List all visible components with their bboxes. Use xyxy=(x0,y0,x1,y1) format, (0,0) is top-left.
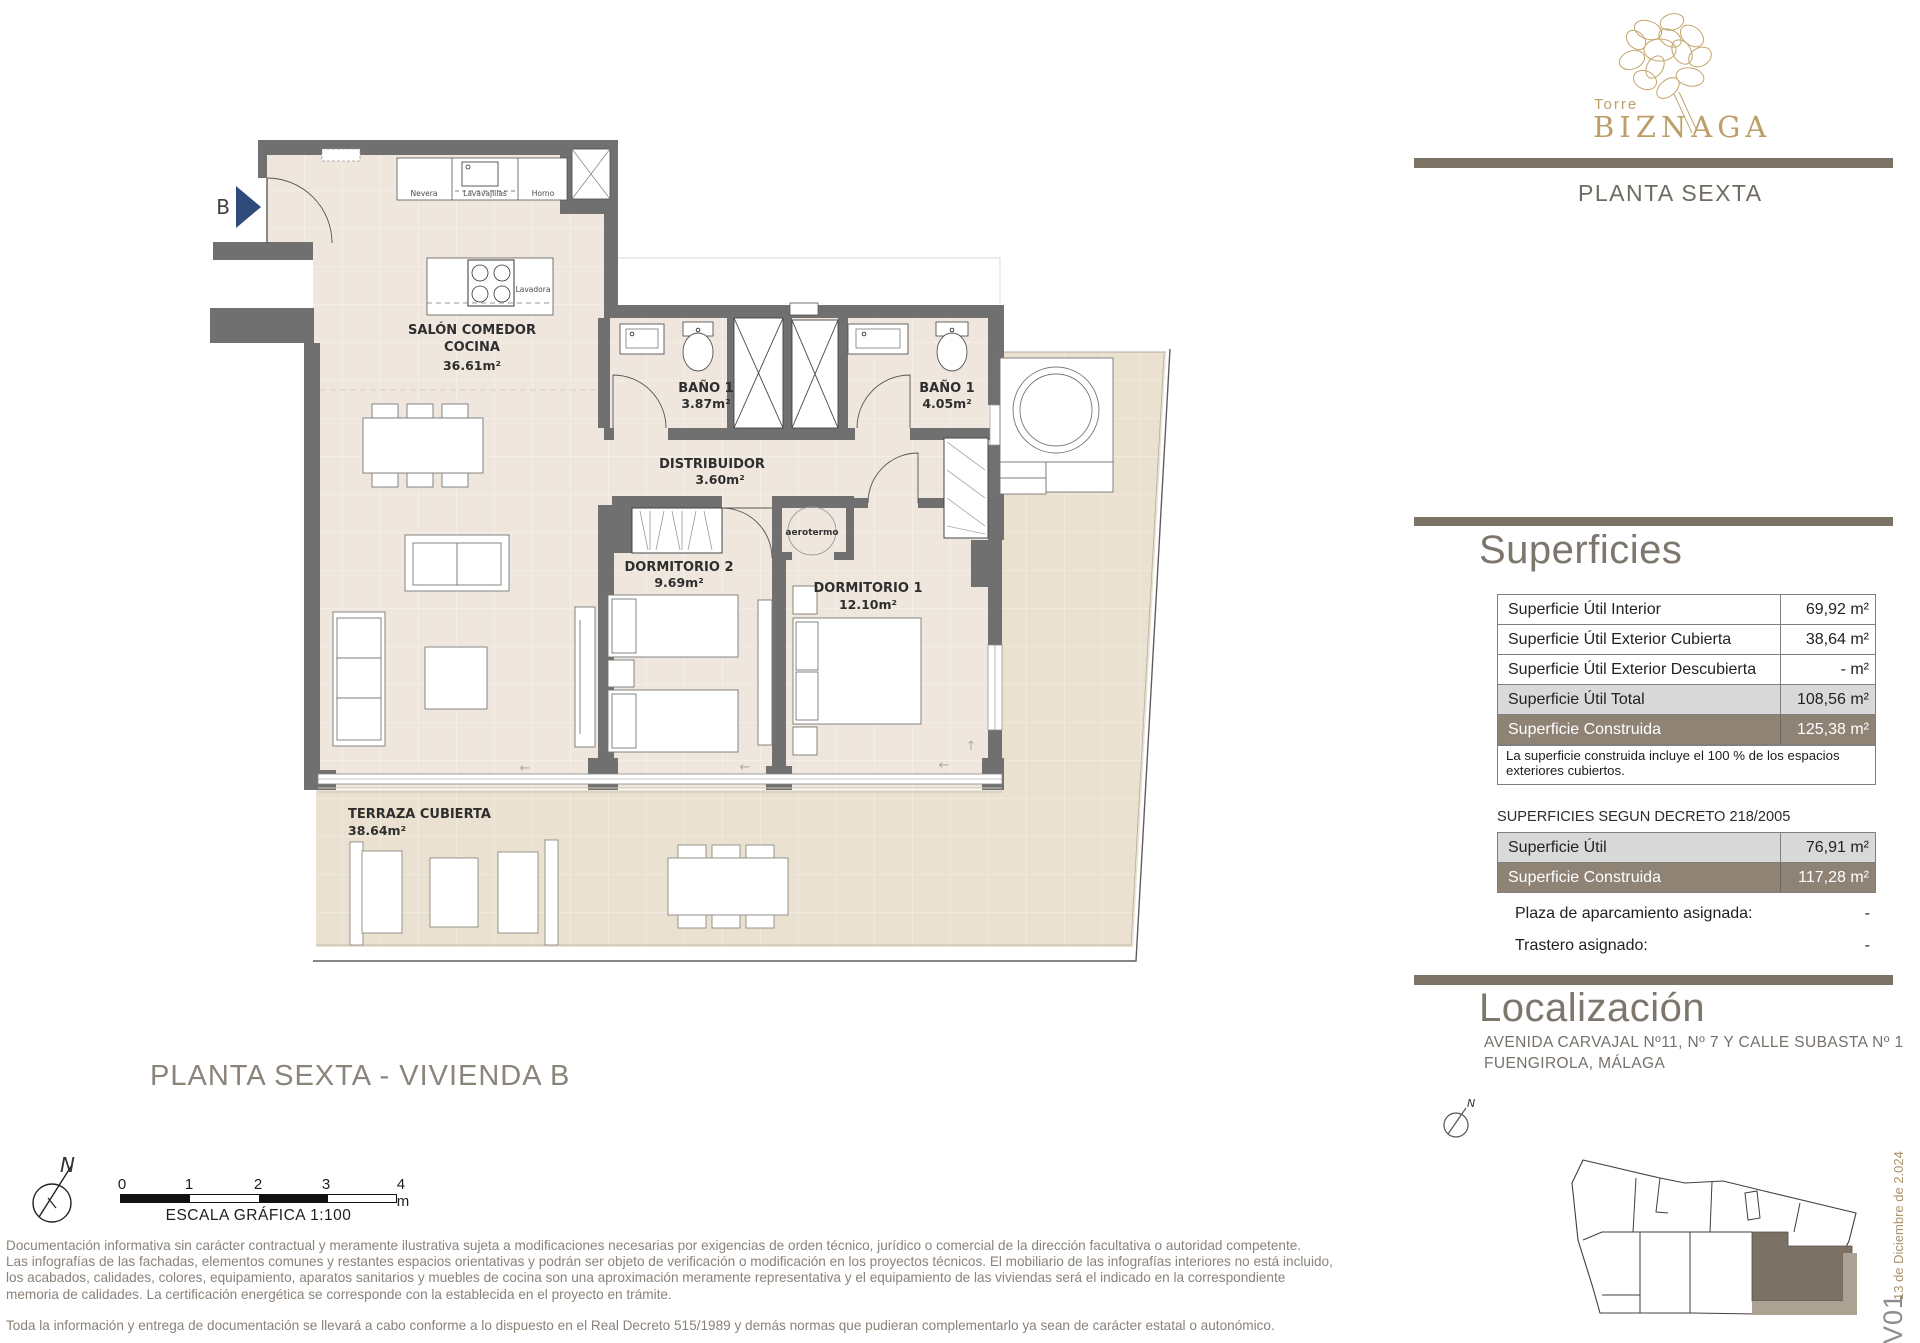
svg-text:↑: ↑ xyxy=(966,739,977,754)
entrance-letter: B xyxy=(216,195,230,219)
decreto-title: SUPERFICIES SEGUN DECRETO 218/2005 xyxy=(1497,809,1790,825)
fridge-label: Nevera xyxy=(411,189,438,198)
jacuzzi xyxy=(1000,358,1113,494)
floor-subtitle: PLANTA SEXTA xyxy=(1578,180,1763,207)
divider-bar-superficies xyxy=(1414,517,1893,526)
parking-value: - xyxy=(1865,905,1874,923)
disclaimer-line: Las infografías de las fachadas, element… xyxy=(6,1254,1426,1270)
page-title: PLANTA SEXTA - VIVIENDA B xyxy=(150,1060,570,1093)
terraza-area: 38.64m² xyxy=(348,823,406,838)
svg-text:N: N xyxy=(60,1153,75,1177)
row-value: - m² xyxy=(1781,655,1875,684)
disclaimer-line: Documentación informativa sin carácter c… xyxy=(6,1238,1426,1254)
distribuidor-area: 3.60m² xyxy=(695,472,744,487)
row-label: Superficie Útil xyxy=(1498,833,1781,862)
scale-caption: ESCALA GRÁFICA 1:100 xyxy=(120,1207,397,1225)
row-value: 125,38 m² xyxy=(1781,715,1875,744)
row-value: 38,64 m² xyxy=(1781,625,1875,654)
aerotermo-label: aerotermo xyxy=(785,528,838,538)
version-date: 13 de Diciembre de 2.024 xyxy=(1891,1128,1906,1300)
dorm1-area: 12.10m² xyxy=(839,597,897,612)
table-row: Superficie Útil Exterior Descubierta - m… xyxy=(1498,655,1875,685)
version-code: V01 xyxy=(1878,1294,1909,1343)
svg-text:←: ← xyxy=(939,758,950,773)
dorm2-area: 9.69m² xyxy=(654,575,703,590)
vent-box xyxy=(790,303,818,315)
table-note: La superficie construida incluye el 100 … xyxy=(1498,745,1875,784)
salon-label-2: COCINA xyxy=(444,340,500,355)
disclaimer-line: los acabados, calidades, colores, equipa… xyxy=(6,1270,1426,1286)
table-row-total: Superficie Útil Total 108,56 m² xyxy=(1498,685,1875,715)
brand-name: BIZNAGA xyxy=(1593,110,1771,144)
divider-bar-top xyxy=(1414,158,1893,168)
floor-plan: B Nevera Lavavajillas Horno xyxy=(205,130,1180,1010)
scale-ticks: 0 1 2 3 4 m xyxy=(120,1176,400,1194)
dining-table xyxy=(363,404,483,487)
disclaimer-footer: Toda la información y entrega de documen… xyxy=(6,1318,1426,1334)
elevator-shaft xyxy=(572,149,610,199)
patio-void-line xyxy=(616,258,1000,305)
row-label: Superficie Construida xyxy=(1498,863,1781,892)
north-arrow-small-icon: N xyxy=(1436,1093,1484,1145)
washer-label: Lavadora xyxy=(516,285,551,294)
address-line-1: AVENIDA CARVAJAL Nº11, Nº 7 Y CALLE SUBA… xyxy=(1484,1034,1904,1052)
divider-bar-localizacion xyxy=(1414,975,1893,985)
disclaimer-line: memoria de calidades. La certificación e… xyxy=(6,1287,1426,1303)
terraza-label: TERRAZA CUBIERTA xyxy=(348,807,491,822)
salon-label: SALÓN COMEDOR xyxy=(408,322,536,338)
row-value: 108,56 m² xyxy=(1781,685,1875,714)
dorm2-label: DORMITORIO 2 xyxy=(624,560,733,575)
svg-text:←: ← xyxy=(520,761,531,776)
row-label: Superficie Construida xyxy=(1498,715,1781,744)
storage-line: Trastero asignado: - xyxy=(1497,937,1874,955)
table-row: Superficie Útil Exterior Cubierta 38,64 … xyxy=(1498,625,1875,655)
oven-label: Horno xyxy=(532,189,555,198)
scale-bar: 0 1 2 3 4 m ESCALA GRÁFICA 1:100 xyxy=(120,1176,400,1225)
north-arrow-main-icon: N xyxy=(22,1150,112,1240)
site-key-plan xyxy=(1540,1130,1920,1343)
row-label: Superficie Útil Exterior Descubierta xyxy=(1498,655,1781,684)
address-line-2: FUENGIROLA, MÁLAGA xyxy=(1484,1055,1665,1073)
row-label: Superficie Útil Interior xyxy=(1498,595,1781,624)
row-label: Superficie Útil Total xyxy=(1498,685,1781,714)
entrance-arrow-icon xyxy=(236,186,261,228)
bano1l-label: BAÑO 1 xyxy=(678,380,733,396)
row-value: 69,92 m² xyxy=(1781,595,1875,624)
table-row: Superficie Construida 117,28 m² xyxy=(1498,863,1875,892)
superficies-heading: Superficies xyxy=(1479,528,1682,573)
table-row-construida: Superficie Construida 125,38 m² xyxy=(1498,715,1875,745)
superficies-table: Superficie Útil Interior 69,92 m² Superf… xyxy=(1497,594,1876,785)
distribuidor-label: DISTRIBUIDOR xyxy=(659,457,765,472)
bano1l-area: 3.87m² xyxy=(681,396,730,411)
plan-sheet: B Nevera Lavavajillas Horno xyxy=(0,0,1920,1343)
decreto-table: Superficie Útil 76,91 m² Superficie Cons… xyxy=(1497,832,1876,893)
wardrobe-dorm1 xyxy=(944,438,988,538)
row-value: 117,28 m² xyxy=(1781,863,1875,892)
closet-dorm2 xyxy=(632,508,722,553)
table-row: Superficie Útil Interior 69,92 m² xyxy=(1498,595,1875,625)
bano1r-area: 4.05m² xyxy=(922,396,971,411)
parking-label: Plaza de aparcamiento asignada: xyxy=(1497,905,1753,923)
dorm1-label: DORMITORIO 1 xyxy=(813,581,922,596)
salon-area: 36.61m² xyxy=(443,358,501,373)
row-label: Superficie Útil Exterior Cubierta xyxy=(1498,625,1781,654)
storage-label: Trastero asignado: xyxy=(1497,937,1648,955)
dishwasher-label: Lavavajillas xyxy=(463,189,507,198)
storage-value: - xyxy=(1865,937,1874,955)
legal-disclaimer: Documentación informativa sin carácter c… xyxy=(6,1238,1426,1334)
svg-text:←: ← xyxy=(740,760,751,775)
table-row: Superficie Útil 76,91 m² xyxy=(1498,833,1875,863)
scale-bar-strip xyxy=(120,1194,397,1203)
row-value: 76,91 m² xyxy=(1781,833,1875,862)
bano1r-label: BAÑO 1 xyxy=(919,380,974,396)
localizacion-heading: Localización xyxy=(1479,986,1705,1031)
svg-text:N: N xyxy=(1467,1097,1475,1110)
parking-line: Plaza de aparcamiento asignada: - xyxy=(1497,905,1874,923)
